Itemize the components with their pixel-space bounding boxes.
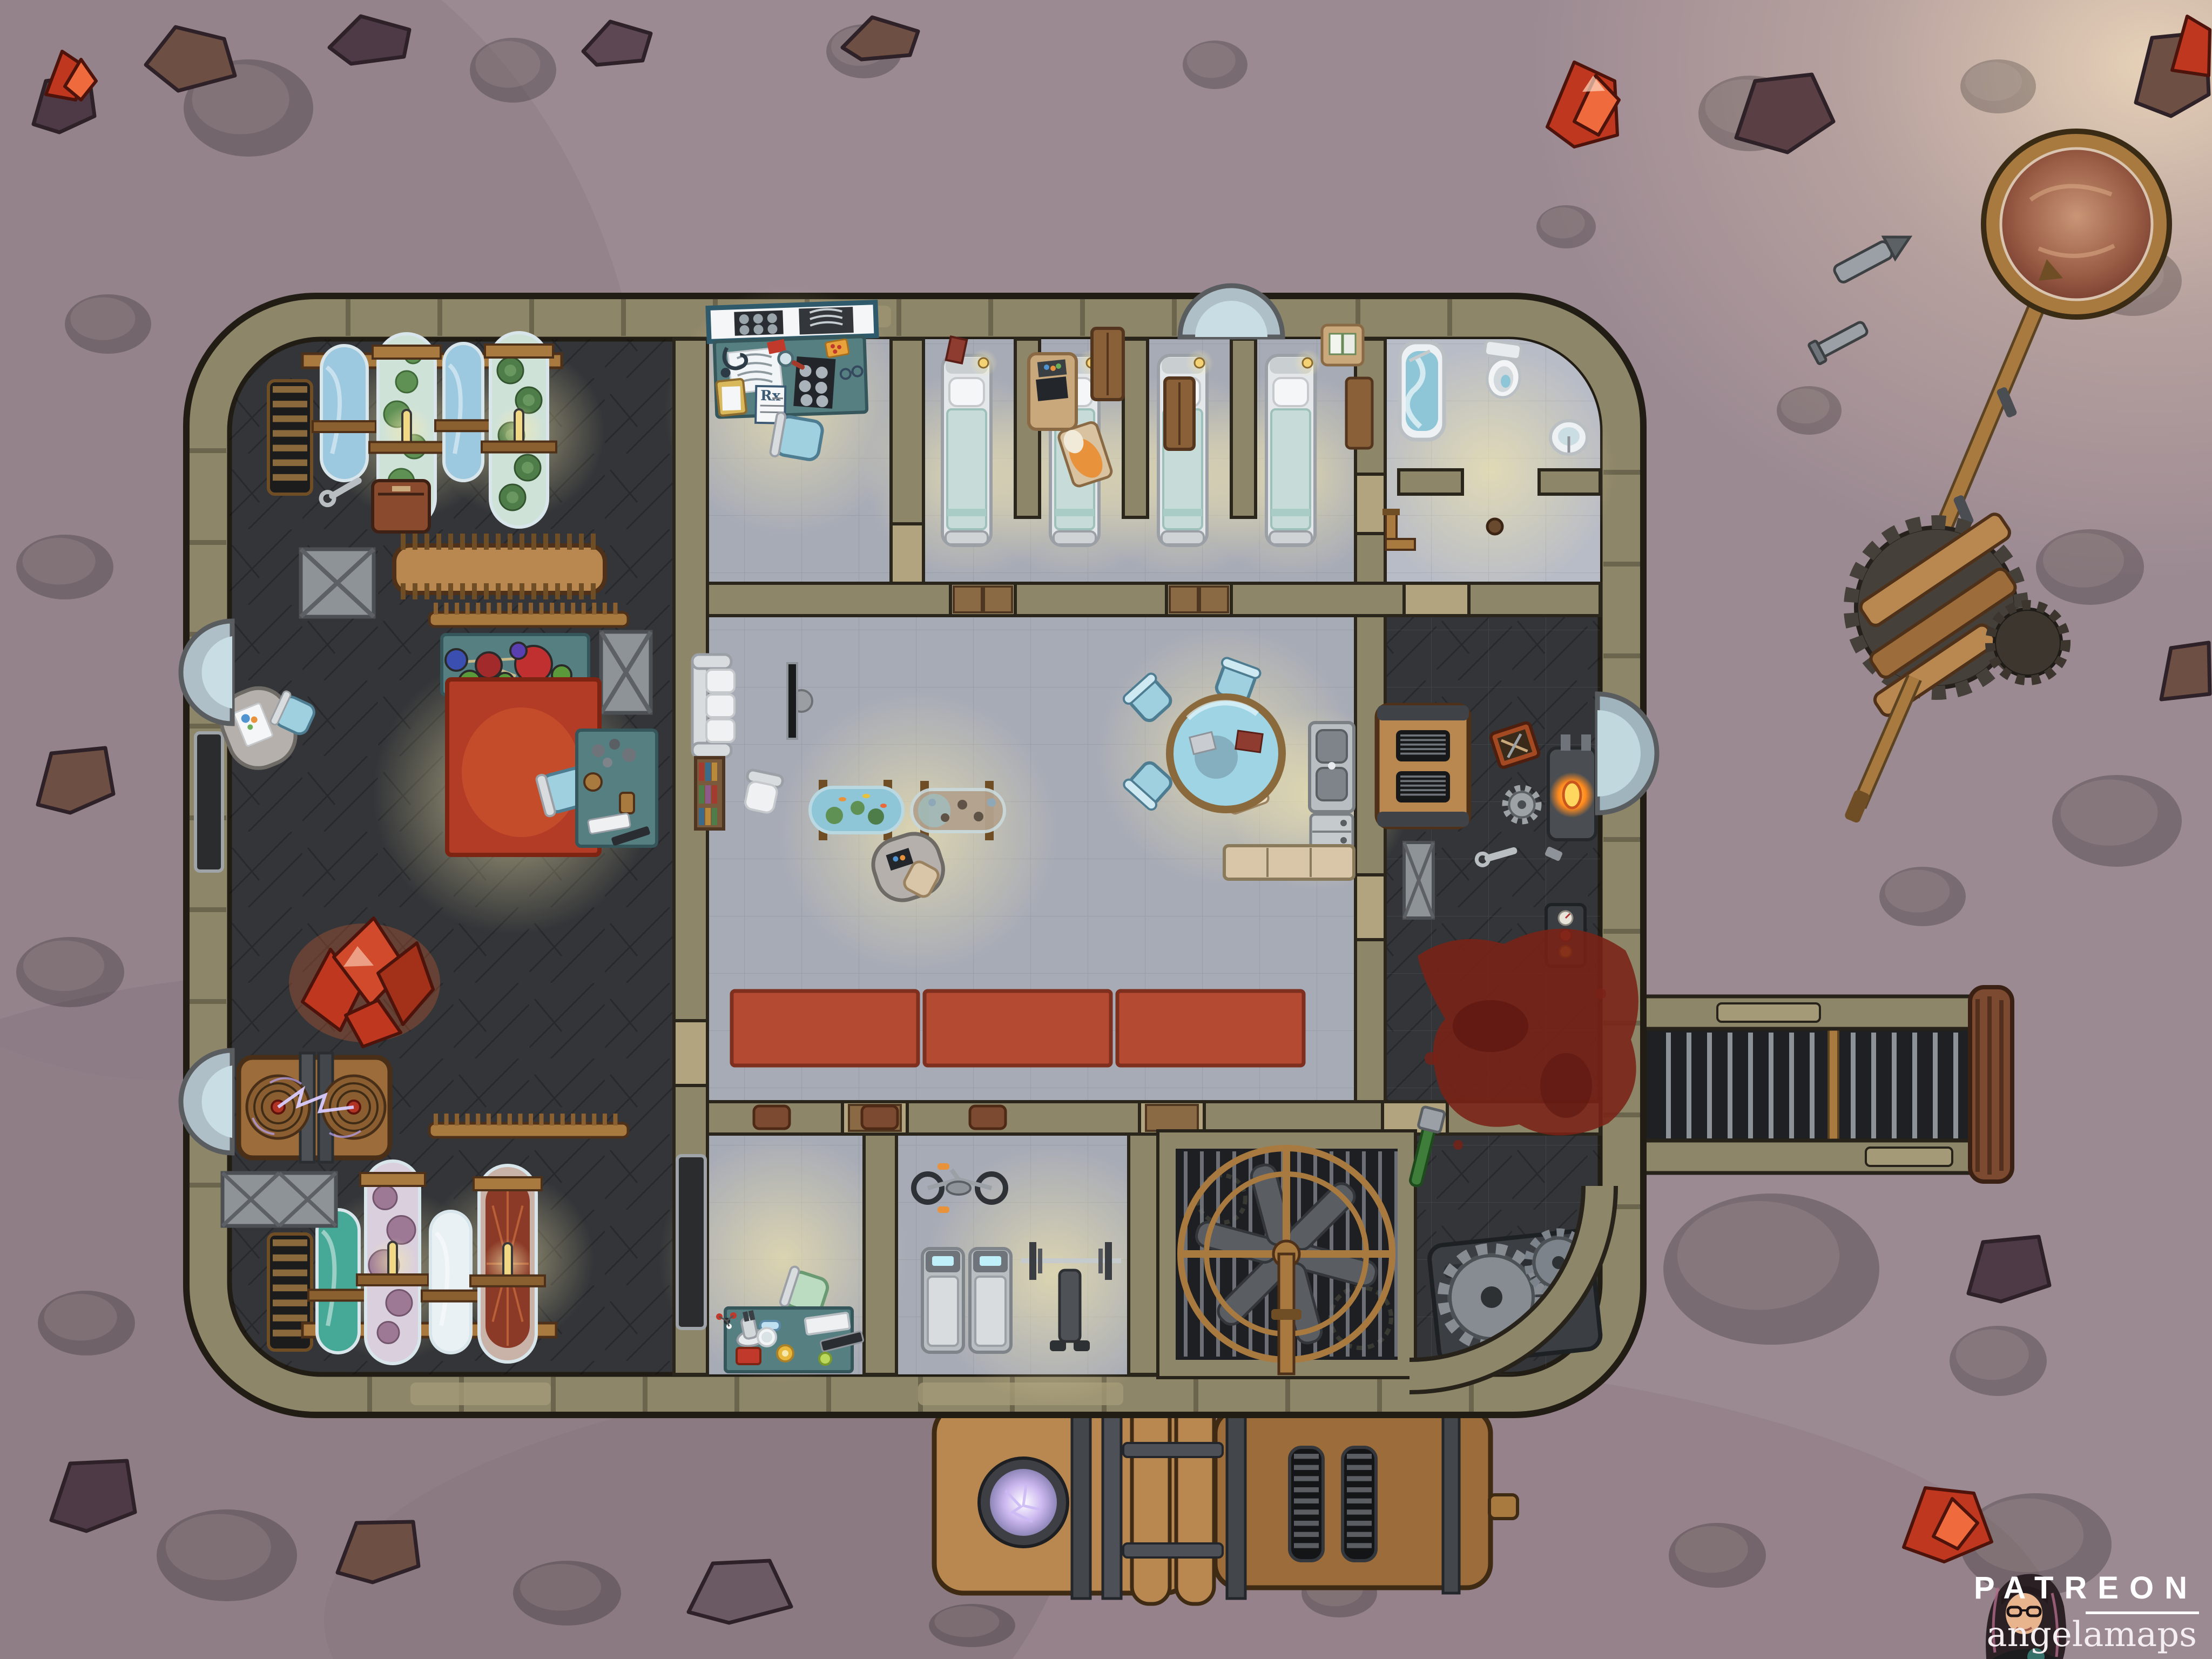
wall-seam bbox=[188, 448, 226, 453]
wall-north-corridor bbox=[1469, 583, 1600, 616]
toolbox-latch bbox=[392, 486, 410, 491]
faucet bbox=[1328, 762, 1336, 770]
fin bbox=[448, 583, 453, 599]
pillow bbox=[1273, 378, 1308, 406]
fin bbox=[472, 583, 477, 599]
belt-slat bbox=[1728, 1033, 1732, 1138]
wall-seam bbox=[643, 1376, 648, 1412]
treadmill bbox=[970, 1249, 1011, 1352]
blanket-stripe bbox=[1055, 509, 1094, 516]
crater-rim bbox=[2061, 780, 2158, 846]
tank-shelf bbox=[357, 1274, 428, 1285]
slat bbox=[273, 415, 307, 422]
fin bbox=[529, 1114, 533, 1125]
tank-glass bbox=[444, 343, 483, 481]
bathtub bbox=[1400, 342, 1444, 440]
book bbox=[1236, 731, 1263, 752]
fin bbox=[579, 534, 584, 550]
pill-pack bbox=[825, 339, 849, 358]
crater-rim bbox=[475, 41, 540, 87]
wall-seam bbox=[1285, 1376, 1290, 1412]
crater bbox=[470, 38, 556, 103]
crater bbox=[2052, 775, 2182, 867]
tank-collar bbox=[485, 345, 553, 358]
wall-seam bbox=[1377, 1376, 1382, 1412]
fin bbox=[424, 583, 429, 599]
conveyor-bridge bbox=[1636, 987, 2012, 1182]
door-sill bbox=[1404, 583, 1469, 616]
pillow bbox=[949, 378, 984, 406]
wall-seam bbox=[1080, 298, 1085, 336]
pipe-collar bbox=[970, 1106, 1006, 1129]
slat bbox=[1400, 794, 1446, 796]
coral-mass bbox=[386, 1290, 412, 1316]
red-mat bbox=[1117, 991, 1304, 1065]
crate bbox=[601, 632, 651, 713]
tank-anemone bbox=[470, 1165, 545, 1362]
fin bbox=[508, 603, 512, 615]
bed-lamp bbox=[1303, 358, 1312, 368]
fin bbox=[518, 1114, 522, 1125]
slat bbox=[273, 401, 307, 407]
crater bbox=[929, 1604, 1015, 1647]
slat bbox=[1347, 1509, 1372, 1514]
tank-shelf bbox=[435, 420, 491, 431]
fin bbox=[466, 1114, 470, 1125]
wall-seam bbox=[1603, 929, 1640, 934]
fin bbox=[582, 1114, 586, 1125]
fin bbox=[567, 534, 572, 550]
fin bbox=[539, 603, 544, 615]
slat bbox=[1400, 753, 1446, 755]
belt-slat bbox=[1707, 1033, 1712, 1138]
wall-seam bbox=[1447, 298, 1452, 336]
slat bbox=[273, 1239, 307, 1246]
fin bbox=[476, 603, 480, 615]
tank-shelf bbox=[422, 1291, 480, 1301]
crater bbox=[1879, 867, 1966, 926]
fin bbox=[561, 603, 565, 615]
tank-shelf bbox=[313, 421, 376, 432]
crater bbox=[65, 294, 151, 354]
fin bbox=[508, 534, 512, 550]
footboard bbox=[1054, 531, 1096, 544]
rail-plate bbox=[1866, 1148, 1952, 1166]
slat bbox=[1294, 1487, 1319, 1492]
fin bbox=[484, 534, 489, 550]
fin bbox=[434, 603, 438, 615]
footboard bbox=[946, 531, 988, 544]
crater bbox=[1536, 205, 1596, 248]
fin bbox=[448, 534, 453, 550]
slat bbox=[273, 474, 307, 481]
belt-plank bbox=[1829, 1027, 1838, 1144]
belt-slat bbox=[1871, 1033, 1876, 1138]
sample-vial bbox=[819, 1353, 831, 1365]
door-sill bbox=[1355, 474, 1385, 534]
slat bbox=[1400, 734, 1446, 737]
fin bbox=[496, 583, 501, 599]
fin bbox=[543, 534, 548, 550]
fin bbox=[460, 534, 465, 550]
tv-screen bbox=[787, 663, 797, 739]
wall-seam bbox=[346, 298, 350, 336]
wall-seam bbox=[1193, 1376, 1198, 1412]
tank-cylinder bbox=[1132, 1394, 1170, 1604]
fin bbox=[497, 603, 501, 615]
crater-rim bbox=[44, 1294, 117, 1340]
fin bbox=[520, 534, 524, 550]
door-leaf bbox=[1170, 586, 1198, 612]
wall-seam bbox=[188, 540, 226, 545]
fin bbox=[436, 534, 441, 550]
stain-dark bbox=[1540, 1053, 1592, 1118]
treadmill-belt bbox=[928, 1277, 958, 1346]
door-leaf bbox=[1146, 1105, 1198, 1131]
rail-plate bbox=[1717, 1003, 1820, 1022]
slat bbox=[273, 460, 307, 466]
slat bbox=[1294, 1543, 1319, 1548]
fin bbox=[539, 1114, 544, 1125]
door-sill bbox=[674, 1021, 707, 1085]
wall-seam bbox=[896, 298, 901, 336]
treadmill-screen bbox=[932, 1256, 954, 1266]
fin bbox=[591, 583, 596, 599]
wall-north-corridor bbox=[1015, 583, 1166, 616]
sink bbox=[1550, 421, 1587, 454]
fin bbox=[496, 534, 501, 550]
open-book bbox=[1330, 334, 1342, 354]
crater-rim bbox=[1781, 389, 1830, 424]
wall-north-corridor bbox=[707, 583, 950, 616]
crater bbox=[1777, 386, 1842, 435]
lantern bbox=[620, 793, 634, 813]
wall-seam bbox=[1603, 837, 1640, 842]
crater bbox=[157, 1509, 297, 1601]
wall-lounge-south bbox=[907, 1102, 1139, 1134]
fin bbox=[476, 1114, 480, 1125]
crater-rim bbox=[1187, 43, 1236, 78]
wall-lab-gym bbox=[864, 1134, 896, 1374]
footboard bbox=[1270, 531, 1312, 544]
floor-drain bbox=[1487, 519, 1502, 534]
fin bbox=[487, 1114, 491, 1125]
fin bbox=[550, 603, 554, 615]
fin bbox=[401, 583, 406, 599]
fin bbox=[444, 603, 449, 615]
slat bbox=[273, 1299, 307, 1306]
strap bbox=[1227, 1400, 1245, 1599]
plant-rose-core bbox=[522, 462, 534, 474]
fin bbox=[455, 603, 459, 615]
magnifier-icon bbox=[778, 352, 793, 366]
red-mat bbox=[925, 991, 1111, 1065]
crater bbox=[1663, 1193, 1879, 1345]
strap bbox=[1443, 1404, 1459, 1593]
fin bbox=[531, 534, 536, 550]
tank-coral bbox=[357, 1161, 428, 1364]
belt-slat bbox=[1933, 1033, 1938, 1138]
belt-slat bbox=[1687, 1033, 1691, 1138]
wall-seam bbox=[1603, 653, 1640, 658]
crater-rim bbox=[166, 1514, 271, 1580]
red-book bbox=[946, 336, 967, 363]
fin bbox=[555, 534, 560, 550]
door-leaf bbox=[984, 586, 1012, 612]
fan-room bbox=[1158, 1131, 1415, 1377]
pipe-collar bbox=[1271, 1309, 1301, 1320]
door-leaf bbox=[1200, 586, 1228, 612]
crater bbox=[1183, 41, 1247, 89]
forge-burner bbox=[1548, 734, 1596, 840]
crater-rim bbox=[1677, 1201, 1839, 1310]
tank-shelf bbox=[308, 1290, 368, 1300]
slat bbox=[1400, 785, 1446, 787]
belt-slat bbox=[1748, 1033, 1753, 1138]
crater-rim bbox=[934, 1606, 999, 1637]
fin bbox=[567, 583, 572, 599]
nightstand-book bbox=[1322, 325, 1363, 365]
battle-map: Rx bbox=[0, 0, 2212, 1659]
fin bbox=[603, 603, 607, 615]
crater bbox=[513, 1561, 621, 1626]
wall-seam bbox=[826, 1376, 831, 1412]
slat bbox=[1347, 1454, 1372, 1459]
wall-seam bbox=[367, 1376, 372, 1412]
slat bbox=[1400, 744, 1446, 746]
heat-radiator bbox=[394, 534, 605, 599]
pipe-collar bbox=[754, 1106, 790, 1129]
fin bbox=[444, 1114, 449, 1125]
stain-dark bbox=[1453, 1000, 1528, 1052]
fin bbox=[531, 583, 536, 599]
fin bbox=[434, 1114, 438, 1125]
slat bbox=[273, 1314, 307, 1321]
slat bbox=[1294, 1532, 1319, 1537]
tesla-coil-generator bbox=[239, 1053, 390, 1162]
dish-glass bbox=[2001, 149, 2152, 300]
door-leaf bbox=[954, 586, 982, 612]
crater bbox=[2036, 529, 2144, 605]
bike-saddle bbox=[947, 1182, 970, 1195]
fin bbox=[518, 603, 522, 615]
slat bbox=[1400, 789, 1446, 791]
plant-rose-core bbox=[523, 394, 535, 406]
blanket-stripe bbox=[947, 509, 986, 516]
slat bbox=[273, 1255, 307, 1262]
wall-hatch-panel bbox=[410, 1382, 551, 1405]
belt-slat bbox=[1789, 1033, 1794, 1138]
red-mat bbox=[732, 991, 918, 1065]
belt-slat bbox=[1892, 1033, 1897, 1138]
fin bbox=[497, 1114, 501, 1125]
slat bbox=[273, 445, 307, 451]
crater-rim bbox=[1885, 870, 1950, 913]
slat bbox=[273, 1270, 307, 1277]
wall-seam bbox=[529, 298, 534, 336]
slat bbox=[1294, 1465, 1319, 1470]
treadmill-screen bbox=[980, 1256, 1001, 1266]
crater bbox=[1960, 59, 2036, 113]
watermark-divider bbox=[2086, 1611, 2199, 1614]
crater-rim bbox=[23, 538, 96, 584]
coral-mass bbox=[373, 1186, 397, 1210]
fin bbox=[529, 603, 533, 615]
crate bbox=[301, 549, 374, 617]
laptop-keyboard bbox=[1036, 376, 1068, 401]
bike-grip bbox=[938, 1206, 949, 1213]
locker bbox=[1346, 378, 1372, 448]
crate-long bbox=[222, 1173, 336, 1226]
fin bbox=[603, 1114, 607, 1125]
chest-xray-film bbox=[799, 307, 854, 334]
belt-slat bbox=[1953, 1033, 1958, 1138]
slat bbox=[1347, 1499, 1372, 1503]
wall-bath-west bbox=[1355, 534, 1385, 583]
slat bbox=[273, 430, 307, 436]
fin bbox=[455, 1114, 459, 1125]
terrarium-turtles bbox=[912, 781, 1004, 840]
slat bbox=[1400, 775, 1446, 778]
wall-seam bbox=[188, 907, 226, 912]
bunk-partition bbox=[1231, 339, 1256, 517]
wall-seam bbox=[1603, 562, 1640, 567]
bunk-partition bbox=[1123, 339, 1148, 517]
tank-collar bbox=[474, 1177, 542, 1190]
fin bbox=[555, 583, 560, 599]
fin bbox=[413, 534, 417, 550]
toilet bbox=[1484, 340, 1522, 400]
tank-shelf bbox=[369, 442, 444, 453]
bookshelf bbox=[696, 758, 724, 829]
crater-rim bbox=[2043, 533, 2124, 588]
crater-rim bbox=[70, 298, 135, 340]
wall-seam bbox=[734, 1376, 739, 1412]
tank-collar bbox=[360, 1173, 425, 1186]
fin bbox=[508, 583, 512, 599]
coral-mass bbox=[377, 1322, 399, 1344]
sink-basin bbox=[1317, 768, 1347, 800]
slat bbox=[1400, 748, 1446, 750]
wall-seam bbox=[188, 999, 226, 1004]
door-sill bbox=[1355, 875, 1385, 940]
wall-medbay-east bbox=[891, 339, 923, 524]
fin bbox=[561, 1114, 565, 1125]
treadmill bbox=[922, 1249, 963, 1352]
door-sill bbox=[891, 524, 923, 583]
crater bbox=[38, 1291, 135, 1355]
strap bbox=[1072, 1400, 1090, 1599]
watermark-brand: PATREON bbox=[1974, 1570, 2198, 1606]
slat bbox=[1400, 739, 1446, 741]
bed-lamp bbox=[979, 358, 988, 368]
fin bbox=[591, 534, 596, 550]
rock bbox=[2161, 643, 2210, 699]
fin bbox=[579, 583, 584, 599]
watermark-author: angelamaps bbox=[1987, 1615, 2197, 1655]
slat bbox=[1347, 1532, 1372, 1537]
slat bbox=[1400, 780, 1446, 782]
laptop-desk bbox=[1029, 354, 1076, 429]
strap bbox=[1103, 1400, 1121, 1599]
slat bbox=[1294, 1499, 1319, 1503]
plant-leaves bbox=[396, 371, 417, 393]
blood-stain bbox=[1418, 929, 1638, 1136]
wall-north-corridor bbox=[1231, 583, 1404, 616]
belt-slat bbox=[1769, 1033, 1773, 1138]
tank-clamp bbox=[1123, 1543, 1223, 1557]
crater-rim bbox=[23, 941, 104, 992]
fin bbox=[613, 603, 617, 615]
bath-stub-wall bbox=[1399, 470, 1462, 494]
tank-shelf bbox=[482, 442, 556, 453]
fin bbox=[550, 1114, 554, 1125]
slat bbox=[1347, 1476, 1372, 1481]
slat bbox=[1347, 1521, 1372, 1526]
fin bbox=[582, 603, 586, 615]
slat bbox=[1347, 1465, 1372, 1470]
red-case bbox=[737, 1348, 760, 1364]
fin bbox=[484, 583, 489, 599]
fin bbox=[571, 603, 575, 615]
outlet-pipe bbox=[1489, 1495, 1518, 1519]
belt-slat bbox=[1912, 1033, 1917, 1138]
cabinet-counter bbox=[1224, 846, 1354, 879]
fin bbox=[543, 583, 548, 599]
fin bbox=[424, 534, 429, 550]
slat bbox=[273, 386, 307, 393]
slat bbox=[1347, 1487, 1372, 1492]
slat bbox=[273, 1285, 307, 1292]
fin bbox=[571, 1114, 575, 1125]
fin bbox=[487, 603, 491, 615]
belt-slat bbox=[1666, 1033, 1671, 1138]
pipe-collar bbox=[862, 1106, 898, 1129]
treadmill-belt bbox=[975, 1277, 1006, 1346]
wall-lounge-east bbox=[1355, 940, 1385, 1102]
wall-gym-fan bbox=[1129, 1134, 1158, 1374]
crater bbox=[16, 535, 113, 599]
aquarium-fish bbox=[810, 780, 903, 840]
belt-slat bbox=[1851, 1033, 1856, 1138]
fin bbox=[508, 1114, 512, 1125]
plant-rose-core bbox=[507, 491, 518, 503]
crate bbox=[1404, 842, 1433, 918]
tank-shelf bbox=[470, 1276, 545, 1286]
external-generator bbox=[934, 1394, 1518, 1604]
fin bbox=[460, 583, 465, 599]
crater-rim bbox=[1675, 1526, 1748, 1573]
blanket-stripe bbox=[1163, 509, 1202, 516]
bench-pad bbox=[1060, 1270, 1080, 1341]
slat bbox=[1294, 1454, 1319, 1459]
crater bbox=[16, 937, 124, 1007]
furnace bbox=[1377, 705, 1469, 827]
fin bbox=[436, 583, 441, 599]
bed-lamp bbox=[1195, 358, 1204, 368]
footboard bbox=[1162, 531, 1204, 544]
tank-clamp bbox=[1123, 1443, 1223, 1457]
fin bbox=[613, 1114, 617, 1125]
wall-seam bbox=[988, 298, 993, 336]
bed bbox=[942, 349, 997, 545]
fin bbox=[472, 534, 477, 550]
slat bbox=[1347, 1543, 1372, 1548]
conveyor-belt bbox=[1666, 1033, 1958, 1138]
fin bbox=[592, 1114, 596, 1125]
compass bbox=[584, 773, 602, 791]
fin bbox=[466, 603, 470, 615]
